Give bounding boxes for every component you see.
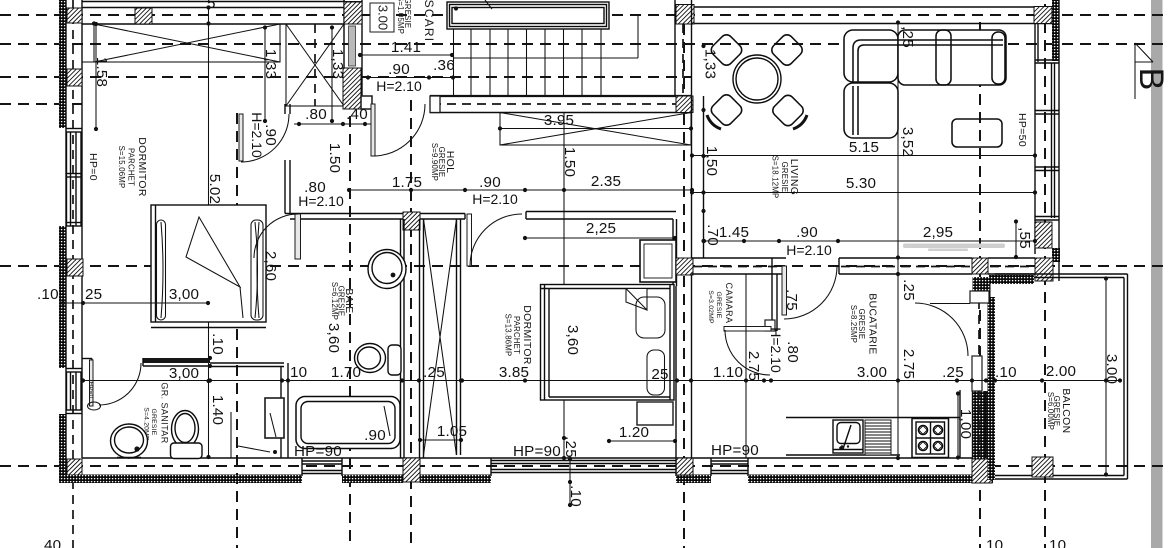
svg-text:S=8.25MP: S=8.25MP (849, 305, 858, 343)
svg-text:S=13.86MP: S=13.86MP (504, 314, 513, 357)
svg-text:.80: .80 (784, 341, 801, 363)
svg-text:CAMARA: CAMARA (724, 283, 734, 324)
svg-text:H=2.10: H=2.10 (298, 193, 344, 209)
svg-text:H=2.10: H=2.10 (786, 242, 832, 258)
svg-text:,55: ,55 (1016, 227, 1033, 249)
svg-text:S=1.05MP: S=1.05MP (396, 0, 405, 34)
svg-text:3,60: 3,60 (325, 323, 342, 353)
svg-text:.10: .10 (995, 364, 1017, 381)
svg-text:S=3.02MP: S=3.02MP (707, 290, 714, 324)
svg-text:10: 10 (986, 537, 1003, 548)
svg-text:.36: .36 (433, 57, 455, 74)
svg-text:1.41: 1.41 (391, 39, 421, 56)
svg-text:GRESIE: GRESIE (715, 292, 722, 319)
svg-text:.25: .25 (562, 436, 579, 458)
svg-text:S=18.12MP: S=18.12MP (771, 156, 780, 199)
svg-text:40: 40 (44, 537, 61, 548)
svg-text:.10: .10 (37, 286, 59, 303)
svg-text:.90: .90 (796, 224, 818, 241)
svg-text:1.10: 1.10 (713, 364, 743, 381)
svg-text:10: 10 (290, 364, 307, 381)
svg-text:HP=0: HP=0 (87, 382, 94, 399)
svg-text:B: B (1132, 68, 1170, 91)
svg-text:1.50: 1.50 (561, 147, 578, 177)
svg-text:2,25: 2,25 (586, 220, 616, 237)
svg-text:H=2.10: H=2.10 (472, 191, 518, 207)
svg-text:HP=90: HP=90 (513, 443, 561, 460)
svg-text:.90: .90 (388, 61, 410, 78)
svg-text:.90: .90 (364, 427, 386, 444)
svg-text:2.35: 2.35 (591, 173, 621, 190)
svg-text:.25: .25 (900, 279, 917, 301)
svg-text:S=6.00MP: S=6.00MP (1046, 392, 1055, 430)
svg-text:10: 10 (1049, 537, 1066, 548)
svg-text:1.20: 1.20 (619, 424, 649, 441)
svg-text:GRESIE: GRESIE (780, 162, 789, 193)
svg-text:1,33: 1,33 (702, 49, 719, 79)
svg-text:3.00: 3.00 (376, 5, 391, 30)
svg-text:PARCHET: PARCHET (127, 148, 136, 186)
svg-text:.10: .10 (209, 333, 226, 355)
svg-text:3,00: 3,00 (169, 365, 199, 382)
svg-text:SCARI: SCARI (422, 0, 436, 42)
svg-text:1.58: 1.58 (93, 57, 110, 87)
svg-text:3,00: 3,00 (169, 286, 199, 303)
svg-text:.90: .90 (479, 174, 501, 191)
svg-text:HP=50: HP=50 (1016, 113, 1027, 147)
svg-text:HP=90: HP=90 (294, 443, 342, 460)
svg-text:1,50: 1,50 (703, 146, 720, 176)
svg-text:.10: .10 (567, 485, 584, 507)
svg-text:5.30: 5.30 (846, 175, 876, 192)
svg-text:3.95: 3.95 (544, 112, 574, 129)
svg-text:3,52: 3,52 (899, 127, 916, 157)
svg-text:HP=0: HP=0 (87, 153, 98, 181)
svg-text:.80: .80 (305, 106, 327, 123)
svg-text:1.40: 1.40 (209, 395, 226, 425)
svg-text:H=2.10: H=2.10 (376, 78, 422, 94)
svg-text:25: 25 (85, 286, 102, 303)
svg-text:DORMITOR: DORMITOR (521, 305, 532, 365)
svg-text:1,00: 1,00 (957, 409, 974, 439)
svg-text:GRESIE: GRESIE (150, 409, 157, 436)
svg-text:DORMITOR: DORMITOR (136, 137, 147, 197)
svg-text:.25: .25 (942, 364, 964, 381)
svg-text:5.02: 5.02 (206, 174, 223, 204)
svg-text:S=9.90MP: S=9.90MP (430, 143, 439, 181)
svg-text:2,95: 2,95 (923, 224, 953, 241)
svg-text:1.70: 1.70 (331, 364, 361, 381)
svg-text:.90: .90 (262, 124, 279, 146)
svg-text:S=6.12MP: S=6.12MP (330, 282, 339, 320)
svg-text:1.50: 1.50 (326, 143, 343, 173)
svg-text:1,33: 1,33 (262, 49, 279, 79)
svg-text:2.75: 2.75 (900, 349, 917, 379)
svg-text:HP=90: HP=90 (711, 442, 759, 459)
svg-text:GR. SANITAR: GR. SANITAR (160, 382, 170, 443)
svg-text:2.75: 2.75 (745, 351, 762, 381)
svg-text:H=2.10: H=2.10 (768, 327, 784, 373)
svg-text:S=15.06MP: S=15.06MP (117, 146, 126, 189)
svg-text:,25: ,25 (899, 26, 916, 48)
svg-text:.25: .25 (423, 364, 445, 381)
svg-text:3,60: 3,60 (564, 325, 581, 355)
svg-text:1.45: 1.45 (719, 224, 749, 241)
svg-text:2,60: 2,60 (262, 251, 279, 281)
svg-text:1.05: 1.05 (437, 423, 467, 440)
svg-text:1.75: 1.75 (392, 174, 422, 191)
svg-text:5: 5 (207, 0, 216, 12)
svg-text:3.00: 3.00 (857, 364, 887, 381)
svg-text:BUCATARIE: BUCATARIE (867, 293, 878, 355)
svg-text:.40: .40 (346, 106, 368, 123)
svg-text:5.15: 5.15 (849, 139, 879, 156)
svg-text:2.00: 2.00 (1046, 363, 1076, 380)
